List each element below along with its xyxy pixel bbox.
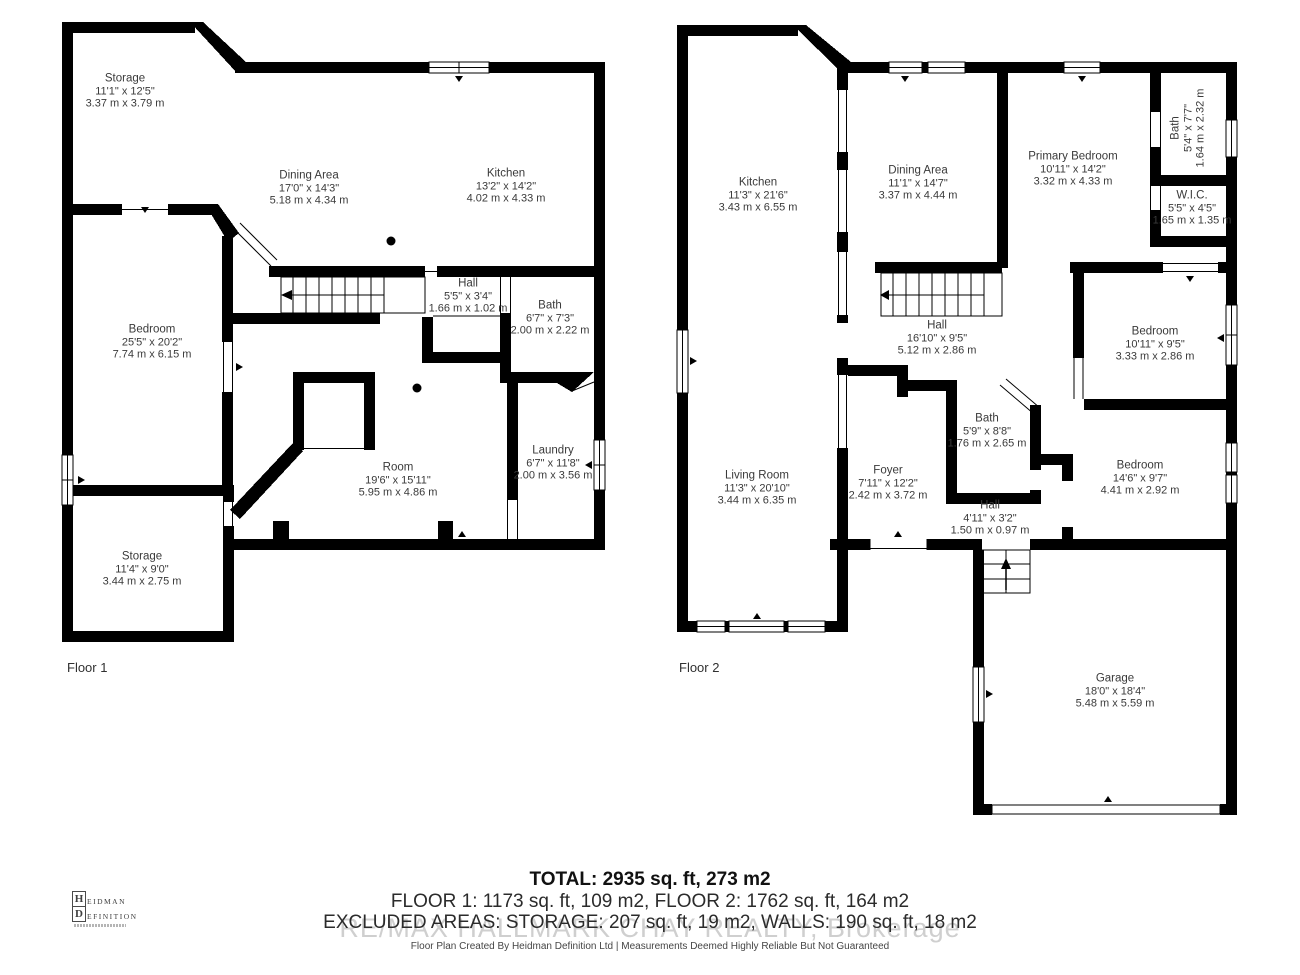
room-label-floor2-foyer: Foyer 7'11" x 12'2" 2.42 m x 3.72 m: [849, 464, 928, 502]
footer-credit: Floor Plan Created By Heidman Definition…: [0, 941, 1300, 952]
room-label-floor2-kitchen: Kitchen 11'3" x 21'6" 3.43 m x 6.55 m: [719, 176, 798, 214]
room-label-floor1-room: Room 19'6" x 15'11" 5.95 m x 4.86 m: [359, 461, 438, 499]
room-label-floor2-dining: Dining Area 11'1" x 14'7" 3.37 m x 4.44 …: [879, 164, 958, 202]
floor1-windows: [62, 62, 605, 505]
room-label-floor2-bath-top: Bath 5'4" x 7'7" 1.64 m x 2.32 m: [1169, 89, 1207, 168]
logo-initial-h: H: [72, 891, 86, 907]
room-label-floor1-kitchen: Kitchen 13'2" x 14'2" 4.02 m x 4.33 m: [467, 167, 546, 205]
room-label-floor2-bedroom-mid: Bedroom 10'11" x 9'5" 3.33 m x 2.86 m: [1116, 325, 1195, 363]
room-label-floor1-bedroom: Bedroom 25'5" x 20'2" 7.74 m x 6.15 m: [113, 323, 192, 361]
room-label-floor2-living: Living Room 11'3" x 20'10" 3.44 m x 6.35…: [718, 469, 797, 507]
logo-initial-d: D: [72, 906, 86, 922]
logo-line-definition: DEFINITION: [72, 907, 138, 922]
room-label-floor2-garage: Garage 18'0" x 18'4" 5.48 m x 5.59 m: [1076, 672, 1155, 710]
room-label-floor1-dining: Dining Area 17'0" x 14'3" 5.18 m x 4.34 …: [270, 169, 349, 207]
footer-excluded-areas: EXCLUDED AREAS: STORAGE: 207 sq. ft, 19 …: [0, 912, 1300, 934]
heidman-definition-logo: HEIDMAN DEFINITION: [72, 892, 138, 927]
room-label-floor2-hall-small: Hall 4'11" x 3'2" 1.50 m x 0.97 m: [951, 499, 1030, 537]
logo-line-heidman: HEIDMAN: [72, 892, 138, 907]
room-label-floor2-primary-bedroom: Primary Bedroom 10'11" x 14'2" 3.32 m x …: [1028, 150, 1117, 188]
room-label-floor1-storage-bottom: Storage 11'4" x 9'0" 3.44 m x 2.75 m: [103, 550, 182, 588]
footer-floor-areas: FLOOR 1: 1173 sq. ft, 109 m2, FLOOR 2: 1…: [0, 891, 1300, 913]
room-label-floor1-hall: Hall 5'5" x 3'4" 1.66 m x 1.02 m: [429, 277, 508, 315]
floorplan-page: Storage 11'1" x 12'5" 3.37 m x 3.79 m Di…: [0, 0, 1300, 975]
room-label-floor2-bedroom-low: Bedroom 14'6" x 9'7" 4.41 m x 2.92 m: [1101, 459, 1180, 497]
logo-tagline: [74, 924, 126, 927]
floor1-title: Floor 1: [67, 660, 107, 675]
room-label-floor1-bath: Bath 6'7" x 7'3" 2.00 m x 2.22 m: [511, 299, 590, 337]
room-label-floor2-wic: W.I.C. 5'5" x 4'5" 1.65 m x 1.35 m: [1153, 189, 1232, 227]
room-label-floor2-hall: Hall 16'10" x 9'5" 5.12 m x 2.86 m: [898, 319, 977, 357]
room-label-floor2-bath-mid: Bath 5'9" x 8'8" 1.76 m x 2.65 m: [948, 412, 1027, 450]
footer-total: TOTAL: 2935 sq. ft, 273 m2: [0, 869, 1300, 891]
room-label-floor1-storage-top: Storage 11'1" x 12'5" 3.37 m x 3.79 m: [86, 72, 165, 110]
floor2-title: Floor 2: [679, 660, 719, 675]
room-label-floor1-laundry: Laundry 6'7" x 11'8" 2.00 m x 3.56 m: [514, 444, 593, 482]
